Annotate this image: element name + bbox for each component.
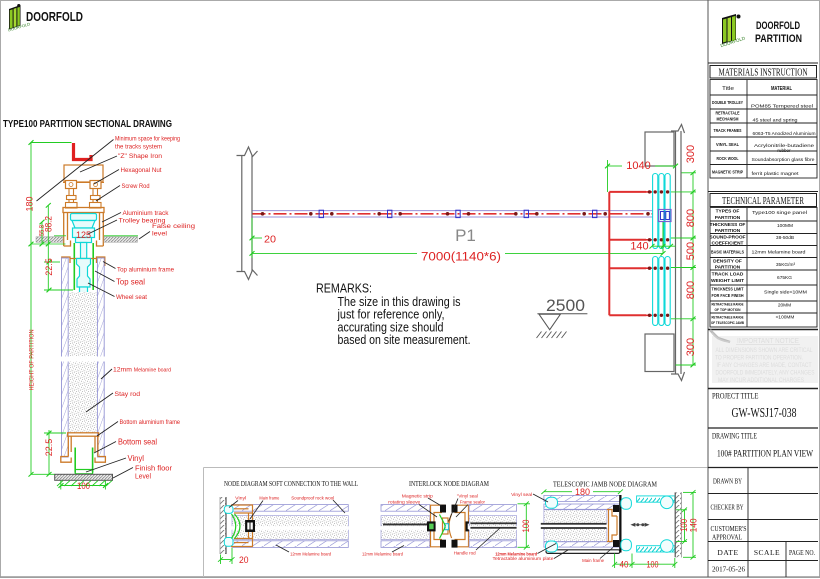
svg-text:PARTITION: PARTITION bbox=[715, 215, 741, 221]
svg-text:MATERIALS INSTRUCTION: MATERIALS INSTRUCTION bbox=[719, 68, 808, 79]
svg-text:DOORFOLD: DOORFOLD bbox=[756, 20, 800, 32]
svg-text:the tracks system: the tracks system bbox=[115, 144, 162, 151]
svg-text:Frame sealor: Frame sealor bbox=[460, 500, 485, 506]
svg-text:MAY INCUR ADDITIONAL CHARGES: MAY INCUR ADDITIONAL CHARGES bbox=[718, 378, 804, 384]
svg-text:300: 300 bbox=[685, 338, 697, 356]
svg-text:Title: Title bbox=[722, 86, 734, 92]
svg-text:6063-T5 Anodized Aluminium: 6063-T5 Anodized Aluminium bbox=[753, 131, 816, 136]
svg-text:Handle rod: Handle rod bbox=[454, 550, 476, 556]
svg-text:"Vinyl seal: "Vinyl seal bbox=[457, 493, 478, 499]
svg-text:Soundabsorption glass fibre: Soundabsorption glass fibre bbox=[752, 157, 815, 162]
svg-text:PARTITION: PARTITION bbox=[755, 33, 802, 45]
svg-text:NODE DIAGRAM SOFT CONNECTION T: NODE DIAGRAM SOFT CONNECTION TO THE WALL bbox=[224, 479, 358, 488]
svg-text:Single side<10MM: Single side<10MM bbox=[764, 290, 807, 296]
svg-text:DOUBLE TROLLEY: DOUBLE TROLLEY bbox=[712, 100, 744, 106]
svg-text:MATERIAL: MATERIAL bbox=[771, 86, 792, 92]
svg-text:12mm Melamine board: 12mm Melamine board bbox=[290, 552, 331, 558]
svg-text:Level: Level bbox=[135, 474, 151, 481]
svg-text:RETRACTABLE RANGE: RETRACTABLE RANGE bbox=[712, 302, 744, 307]
svg-text:MAGNETIC STRIP: MAGNETIC STRIP bbox=[712, 170, 744, 176]
svg-text:PARTITION: PARTITION bbox=[715, 265, 741, 271]
svg-text:800: 800 bbox=[685, 281, 697, 299]
svg-text:APPROVAL: APPROVAL bbox=[712, 533, 742, 542]
svg-text:FOR FACE FINISH: FOR FACE FINISH bbox=[712, 293, 745, 298]
svg-text:Top aluminium frame: Top aluminium frame bbox=[117, 267, 174, 274]
svg-text:12mm Melamine board: 12mm Melamine board bbox=[113, 367, 171, 374]
svg-text:140: 140 bbox=[630, 241, 648, 253]
svg-text:OF TELESCOPIC JAMB: OF TELESCOPIC JAMB bbox=[711, 320, 744, 325]
svg-text:OF TOP MOTION: OF TOP MOTION bbox=[715, 307, 741, 312]
svg-text:38-50dB: 38-50dB bbox=[776, 235, 794, 241]
svg-text:SOUND-PROOF: SOUND-PROOF bbox=[710, 235, 746, 241]
svg-text:45 steel and spring: 45 steel and spring bbox=[753, 117, 799, 122]
svg-text:DOORFOLD IMMEDIATELY, ANY CHAN: DOORFOLD IMMEDIATELY, ANY CHANGES bbox=[716, 371, 815, 377]
svg-text:ALL DIMENSIONS SHOWN ARE CRITI: ALL DIMENSIONS SHOWN ARE CRITICAL bbox=[716, 348, 814, 354]
svg-text:rotating sleeve: rotating sleeve bbox=[388, 500, 420, 506]
svg-text:675KG: 675KG bbox=[777, 275, 792, 281]
svg-text:100: 100 bbox=[647, 560, 659, 570]
svg-text:DRAWING TITLE: DRAWING TITLE bbox=[712, 432, 757, 441]
svg-text:140: 140 bbox=[688, 518, 698, 532]
svg-text:GW-WSJ17-038: GW-WSJ17-038 bbox=[732, 405, 797, 420]
svg-text:1040: 1040 bbox=[626, 160, 650, 172]
svg-text:Vinyl seal: Vinyl seal bbox=[511, 492, 532, 498]
svg-text:SCALE: SCALE bbox=[754, 548, 780, 557]
svg-text:Main frame: Main frame bbox=[582, 558, 604, 564]
svg-text:Wheel seat: Wheel seat bbox=[116, 294, 147, 301]
svg-text:Hexagonal Nut: Hexagonal Nut bbox=[121, 167, 162, 174]
svg-text:PROJECT TITLE: PROJECT TITLE bbox=[712, 392, 759, 401]
svg-text:INTERLOCK NODE DIAGRAM: INTERLOCK NODE DIAGRAM bbox=[409, 479, 489, 488]
svg-text:500: 500 bbox=[685, 242, 697, 260]
svg-text:RETRACTABLE RANGE: RETRACTABLE RANGE bbox=[712, 315, 744, 320]
svg-text:TO PROPER PARTITION OPERATION.: TO PROPER PARTITION OPERATION. bbox=[715, 356, 803, 362]
svg-text:Vinyl: Vinyl bbox=[235, 496, 246, 502]
svg-text:20MM: 20MM bbox=[778, 303, 791, 309]
svg-text:100: 100 bbox=[77, 481, 90, 491]
svg-text:12mm Melamine board: 12mm Melamine board bbox=[752, 250, 806, 256]
svg-text:DOORFOLD: DOORFOLD bbox=[26, 9, 83, 24]
svg-text:Bottom seal: Bottom seal bbox=[118, 438, 157, 447]
svg-text:Vinyl: Vinyl bbox=[128, 454, 145, 463]
svg-text:12mm Melamine board: 12mm Melamine board bbox=[362, 552, 403, 558]
svg-text:Finish floor: Finish floor bbox=[135, 466, 173, 473]
svg-text:WEIGHT LIMIT: WEIGHT LIMIT bbox=[711, 278, 744, 284]
svg-text:POM85 Tempered steel: POM85 Tempered steel bbox=[751, 104, 813, 109]
svg-text:20: 20 bbox=[264, 234, 276, 246]
svg-text:22.5: 22.5 bbox=[44, 439, 54, 457]
svg-text:Screw Rod: Screw Rod bbox=[122, 183, 150, 190]
svg-text:Aluminium track: Aluminium track bbox=[123, 210, 170, 217]
svg-text:TRACK LOAD: TRACK LOAD bbox=[712, 272, 744, 278]
svg-text:55.8: 55.8 bbox=[37, 225, 46, 236]
svg-text:THICKNESS OF: THICKNESS OF bbox=[710, 222, 746, 228]
svg-text:TYPE100 PARTITION SECTIONAL DR: TYPE100 PARTITION SECTIONAL DRAWING bbox=[3, 119, 172, 130]
svg-text:False ceiling: False ceiling bbox=[152, 223, 195, 230]
svg-text:ROCK WOOL: ROCK WOOL bbox=[717, 156, 739, 162]
svg-text:"Z" Shape Iron: "Z" Shape Iron bbox=[118, 153, 162, 160]
svg-text:2017-05-26: 2017-05-26 bbox=[712, 565, 745, 574]
svg-text:REMARKS:: REMARKS: bbox=[316, 282, 372, 296]
svg-text:DRAWN BY: DRAWN BY bbox=[713, 477, 742, 486]
svg-text:800: 800 bbox=[685, 209, 697, 227]
svg-text:TRACK FRAMES: TRACK FRAMES bbox=[714, 128, 743, 134]
svg-text:PAGE NO.: PAGE NO. bbox=[789, 548, 815, 557]
svg-text:THICKNESS LIMIT: THICKNESS LIMIT bbox=[712, 287, 744, 292]
svg-text:ferrit plastic magnet: ferrit plastic magnet bbox=[752, 171, 800, 176]
svg-text:VINYL SEAL: VINYL SEAL bbox=[716, 142, 739, 148]
svg-text:TECHNICAL PARAMETER: TECHNICAL PARAMETER bbox=[722, 196, 804, 207]
svg-text:125: 125 bbox=[76, 230, 91, 240]
svg-text:P1: P1 bbox=[455, 226, 476, 245]
svg-text:TELESCOPIC JAMB NODE DIAGRAM: TELESCOPIC JAMB NODE DIAGRAM bbox=[553, 480, 657, 489]
svg-text:based on site measurement.: based on site measurement. bbox=[338, 333, 471, 347]
svg-text:Stay rod: Stay rod bbox=[115, 391, 141, 398]
svg-text:22.5: 22.5 bbox=[44, 258, 54, 276]
svg-text:Type100 singe panel: Type100 singe panel bbox=[752, 210, 807, 216]
svg-text:HEIGHT OF PARTITION: HEIGHT OF PARTITION bbox=[30, 330, 36, 391]
svg-text:RETRACTALE: RETRACTALE bbox=[716, 111, 741, 117]
svg-text:DENSITY OF: DENSITY OF bbox=[713, 259, 742, 265]
svg-text:40: 40 bbox=[620, 560, 629, 570]
svg-text:level: level bbox=[152, 231, 168, 238]
svg-text:7000(1140*6): 7000(1140*6) bbox=[421, 252, 501, 264]
svg-text:20: 20 bbox=[239, 555, 249, 565]
svg-text:Bottom aluminium frame: Bottom aluminium frame bbox=[120, 419, 181, 426]
svg-text:100MM: 100MM bbox=[777, 223, 793, 229]
svg-text:100# PARTITION PLAN VIEW: 100# PARTITION PLAN VIEW bbox=[717, 449, 813, 459]
svg-text:CHECKER BY: CHECKER BY bbox=[711, 503, 744, 512]
svg-text:Minimum space for keeping: Minimum space for keeping bbox=[115, 136, 180, 143]
svg-text:DATE: DATE bbox=[717, 548, 738, 557]
svg-text:100: 100 bbox=[521, 520, 531, 533]
svg-text:180: 180 bbox=[25, 197, 35, 212]
svg-text:Soundproof rock wool: Soundproof rock wool bbox=[291, 496, 334, 502]
svg-text:PARTITION: PARTITION bbox=[715, 228, 741, 234]
svg-text:<100MM: <100MM bbox=[776, 315, 795, 321]
svg-text:IF ANY CHANGES ARE MADE, CONTA: IF ANY CHANGES ARE MADE, CONTACT bbox=[717, 363, 812, 369]
svg-text:IMPORTANT NOTICE: IMPORTANT NOTICE bbox=[737, 338, 799, 345]
svg-text:COEFFICIENT: COEFFICIENT bbox=[712, 241, 744, 247]
svg-text:MECHANISM: MECHANISM bbox=[717, 117, 739, 123]
svg-text:TYPES OF: TYPES OF bbox=[716, 209, 740, 215]
svg-text:Top seal: Top seal bbox=[116, 278, 145, 287]
svg-text:2500: 2500 bbox=[546, 297, 585, 315]
svg-text:Main frame: Main frame bbox=[259, 496, 279, 502]
svg-text:35KG/m³: 35KG/m³ bbox=[776, 262, 796, 268]
svg-text:300: 300 bbox=[685, 145, 697, 163]
svg-text:BASIC MATERIALS: BASIC MATERIALS bbox=[711, 250, 745, 256]
svg-text:Tetractable aluminium plate: Tetractable aluminium plate bbox=[493, 556, 554, 562]
svg-text:rubber: rubber bbox=[777, 148, 791, 153]
